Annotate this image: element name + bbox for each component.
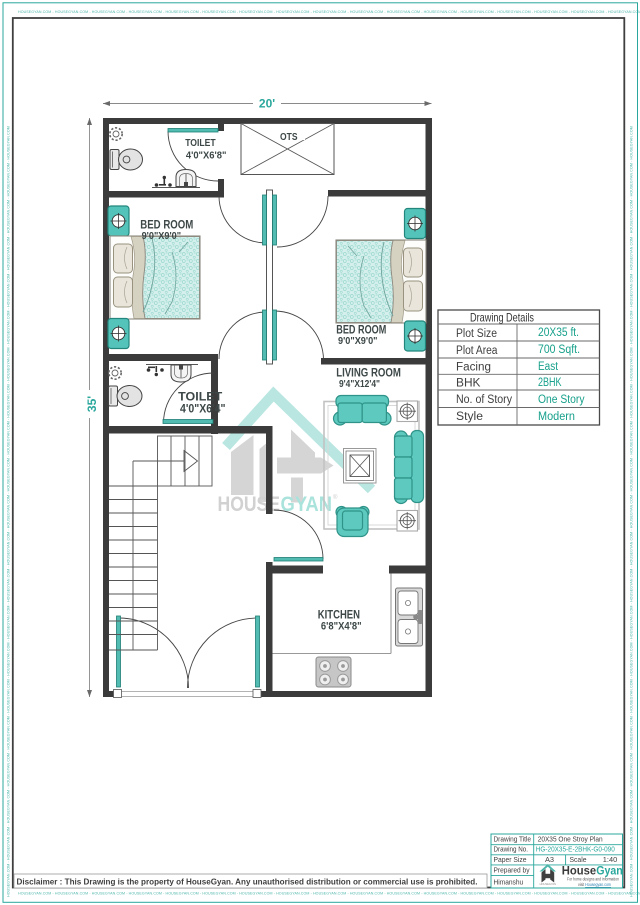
svg-text:For home designs and informati: For home designs and information: [567, 877, 619, 882]
svg-text:9'0"X9'0": 9'0"X9'0": [142, 230, 182, 242]
svg-text:Plot Area: Plot Area: [456, 345, 498, 357]
svg-text:9'0"X9'0": 9'0"X9'0": [338, 335, 378, 347]
svg-text:35': 35': [85, 396, 99, 412]
svg-text:Style: Style: [456, 411, 483, 423]
svg-text:4'0"X6'8": 4'0"X6'8": [186, 151, 227, 162]
svg-text:Plot Size: Plot Size: [456, 328, 497, 340]
svg-text:6'8"X4'8": 6'8"X4'8": [321, 621, 362, 633]
svg-text:One Story: One Story: [538, 394, 585, 406]
svg-text:4'0"X6'4": 4'0"X6'4": [180, 404, 226, 416]
svg-text:OTS: OTS: [280, 131, 298, 143]
svg-text:Drawing Details: Drawing Details: [470, 311, 534, 325]
svg-text:No. of Story: No. of Story: [456, 394, 512, 406]
svg-text:House: House: [562, 866, 596, 878]
svg-text:HG-20X35-E-2BHK-G0-090: HG-20X35-E-2BHK-G0-090: [536, 845, 615, 854]
svg-text:TOILET: TOILET: [178, 390, 223, 404]
svg-text:20': 20': [259, 97, 275, 111]
svg-text:Himanshu: Himanshu: [494, 877, 524, 886]
svg-text:20X35 ft.: 20X35 ft.: [538, 327, 579, 339]
svg-text:Modern: Modern: [538, 411, 575, 423]
svg-text:700 Sqft.: 700 Sqft.: [538, 344, 580, 356]
svg-text:20X35 One Stroy Plan: 20X35 One Stroy Plan: [538, 834, 603, 843]
svg-text:Drawing Title: Drawing Title: [494, 834, 532, 843]
svg-text:2BHK: 2BHK: [538, 377, 562, 389]
svg-text:HOUSEGYAN.COM - HOUSEGYAN.COM: HOUSEGYAN.COM - HOUSEGYAN.COM - HOUSEGYA…: [7, 126, 11, 897]
svg-text:®: ®: [333, 494, 338, 501]
svg-text:Prepared by: Prepared by: [494, 865, 530, 874]
svg-text:1:40: 1:40: [603, 855, 617, 864]
svg-text:HOUSEGYAN: HOUSEGYAN: [540, 882, 557, 886]
svg-text:HOUSEGYAN.COM - HOUSEGYAN.COM: HOUSEGYAN.COM - HOUSEGYAN.COM - HOUSEGYA…: [18, 10, 640, 14]
svg-text:Facing: Facing: [456, 362, 491, 374]
svg-text:Disclaimer : This Drawing is t: Disclaimer : This Drawing is the propert…: [17, 877, 478, 886]
svg-text:BHK: BHK: [456, 378, 481, 390]
svg-text:Drawing No.: Drawing No.: [494, 845, 529, 854]
svg-text:Paper Size: Paper Size: [494, 855, 527, 864]
svg-text:Gyan: Gyan: [596, 866, 623, 878]
svg-text:A3: A3: [545, 855, 554, 864]
svg-text:Scale: Scale: [570, 855, 587, 864]
svg-text:visit Housegyan.com: visit Housegyan.com: [578, 882, 611, 887]
svg-text:HOUSEGYAN.COM - HOUSEGYAN.COM: HOUSEGYAN.COM - HOUSEGYAN.COM - HOUSEGYA…: [18, 892, 640, 896]
svg-text:HOUSEGYAN.COM - HOUSEGYAN.COM: HOUSEGYAN.COM - HOUSEGYAN.COM - HOUSEGYA…: [630, 126, 634, 897]
svg-text:East: East: [538, 361, 559, 373]
svg-text:TOILET: TOILET: [185, 138, 216, 149]
svg-text:9'4"X12'4": 9'4"X12'4": [339, 378, 380, 390]
